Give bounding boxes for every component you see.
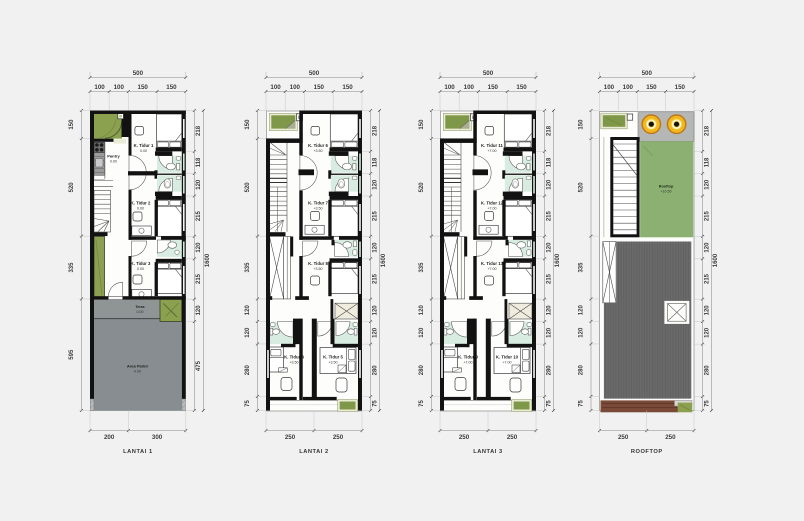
svg-text:100: 100 xyxy=(94,84,105,91)
svg-text:+7.00: +7.00 xyxy=(487,267,496,271)
svg-text:120: 120 xyxy=(546,305,552,316)
svg-text:0.00: 0.00 xyxy=(137,267,144,271)
svg-text:120: 120 xyxy=(419,305,425,316)
svg-text:250: 250 xyxy=(459,434,470,441)
svg-text:150: 150 xyxy=(419,119,425,130)
svg-text:215: 215 xyxy=(704,273,710,284)
svg-text:120: 120 xyxy=(245,305,251,316)
svg-text:500: 500 xyxy=(133,70,144,77)
svg-text:200: 200 xyxy=(104,434,115,441)
svg-text:0.00: 0.00 xyxy=(137,310,144,314)
svg-text:150: 150 xyxy=(314,84,325,91)
svg-text:520: 520 xyxy=(579,182,585,193)
svg-text:118: 118 xyxy=(704,157,710,167)
svg-text:LANTAI 3: LANTAI 3 xyxy=(473,449,503,455)
svg-text:120: 120 xyxy=(372,327,378,338)
svg-text:500: 500 xyxy=(483,70,494,77)
svg-text:Teras: Teras xyxy=(135,305,144,309)
svg-text:1600: 1600 xyxy=(381,253,387,267)
svg-text:280: 280 xyxy=(419,365,425,376)
svg-text:218: 218 xyxy=(546,125,552,136)
svg-text:250: 250 xyxy=(507,434,518,441)
svg-text:215: 215 xyxy=(372,210,378,221)
svg-text:335: 335 xyxy=(245,262,251,273)
svg-text:335: 335 xyxy=(579,262,585,273)
svg-text:120: 120 xyxy=(546,327,552,338)
svg-text:280: 280 xyxy=(704,365,710,376)
svg-text:218: 218 xyxy=(372,125,378,136)
svg-text:215: 215 xyxy=(372,273,378,284)
svg-text:0.00: 0.00 xyxy=(110,160,117,164)
svg-text:0.00: 0.00 xyxy=(137,207,144,211)
svg-text:500: 500 xyxy=(309,70,320,77)
svg-text:+10.50: +10.50 xyxy=(660,190,671,194)
svg-text:150: 150 xyxy=(245,119,251,130)
svg-text:100: 100 xyxy=(114,84,125,91)
svg-text:118: 118 xyxy=(196,157,202,167)
svg-text:+3.50: +3.50 xyxy=(313,267,322,271)
svg-text:280: 280 xyxy=(245,365,251,376)
svg-text:+7.00: +7.00 xyxy=(487,207,496,211)
svg-text:100: 100 xyxy=(270,84,281,91)
svg-text:75: 75 xyxy=(579,399,585,406)
svg-text:K. Tidur 10: K. Tidur 10 xyxy=(496,355,519,360)
svg-text:75: 75 xyxy=(546,400,552,407)
svg-text:K. Tidur 1: K. Tidur 1 xyxy=(134,143,154,148)
svg-text:475: 475 xyxy=(196,360,202,371)
svg-text:215: 215 xyxy=(196,273,202,284)
svg-text:K. Tidur 12: K. Tidur 12 xyxy=(481,201,504,206)
svg-text:K. Tidur 2: K. Tidur 2 xyxy=(131,201,151,206)
svg-text:K. Tidur 13: K. Tidur 13 xyxy=(481,261,504,266)
svg-text:595: 595 xyxy=(69,349,75,360)
svg-text:300: 300 xyxy=(152,434,163,441)
svg-text:520: 520 xyxy=(245,182,251,193)
svg-text:118: 118 xyxy=(372,157,378,167)
svg-text:120: 120 xyxy=(704,242,710,253)
svg-text:K. Tidur 7: K. Tidur 7 xyxy=(308,201,328,206)
svg-text:100: 100 xyxy=(444,84,455,91)
svg-text:150: 150 xyxy=(516,84,527,91)
svg-text:120: 120 xyxy=(196,242,202,253)
svg-text:+3.50: +3.50 xyxy=(289,361,298,365)
svg-text:LANTAI 2: LANTAI 2 xyxy=(299,449,329,455)
svg-text:250: 250 xyxy=(665,434,676,441)
svg-text:100: 100 xyxy=(290,84,301,91)
svg-text:K. Tidur 5: K. Tidur 5 xyxy=(323,355,343,360)
svg-text:150: 150 xyxy=(488,84,499,91)
svg-text:250: 250 xyxy=(618,434,629,441)
svg-text:120: 120 xyxy=(704,305,710,316)
svg-text:280: 280 xyxy=(546,365,552,376)
svg-text:150: 150 xyxy=(138,84,149,91)
svg-text:120: 120 xyxy=(579,305,585,316)
svg-text:K. Tidur 4: K. Tidur 4 xyxy=(284,355,304,360)
svg-text:218: 218 xyxy=(704,125,710,136)
svg-text:150: 150 xyxy=(342,84,353,91)
svg-text:150: 150 xyxy=(579,119,585,130)
svg-text:+7.00: +7.00 xyxy=(487,149,496,153)
svg-text:75: 75 xyxy=(372,400,378,407)
svg-text:335: 335 xyxy=(69,262,75,273)
svg-text:K. Tidur 3: K. Tidur 3 xyxy=(131,261,151,266)
svg-text:100: 100 xyxy=(623,84,634,91)
svg-text:335: 335 xyxy=(419,262,425,273)
svg-text:Rooftop: Rooftop xyxy=(659,185,674,189)
svg-text:+7.00: +7.00 xyxy=(463,361,472,365)
svg-text:280: 280 xyxy=(579,365,585,376)
svg-text:+3.50: +3.50 xyxy=(313,149,322,153)
svg-text:ROOFTOP: ROOFTOP xyxy=(631,449,663,455)
svg-text:75: 75 xyxy=(245,399,251,406)
svg-text:1600: 1600 xyxy=(555,253,561,267)
svg-text:150: 150 xyxy=(646,84,657,91)
svg-text:LANTAI 1: LANTAI 1 xyxy=(123,449,153,455)
svg-text:120: 120 xyxy=(196,305,202,316)
svg-text:120: 120 xyxy=(546,179,552,190)
svg-text:120: 120 xyxy=(704,327,710,338)
svg-text:215: 215 xyxy=(704,210,710,221)
svg-text:150: 150 xyxy=(675,84,686,91)
svg-text:Area Parkir: Area Parkir xyxy=(127,364,149,369)
svg-text:280: 280 xyxy=(372,365,378,376)
svg-text:K. Tidur 8: K. Tidur 8 xyxy=(308,261,328,266)
svg-text:0.00: 0.00 xyxy=(134,370,141,374)
svg-text:75: 75 xyxy=(704,400,710,407)
svg-text:215: 215 xyxy=(546,273,552,284)
svg-text:120: 120 xyxy=(546,242,552,253)
svg-text:75: 75 xyxy=(419,399,425,406)
svg-text:120: 120 xyxy=(704,179,710,190)
svg-text:120: 120 xyxy=(196,179,202,190)
svg-text:520: 520 xyxy=(69,182,75,193)
svg-text:+3.50: +3.50 xyxy=(328,361,337,365)
svg-text:250: 250 xyxy=(333,434,344,441)
svg-text:215: 215 xyxy=(196,210,202,221)
svg-text:150: 150 xyxy=(69,119,75,130)
svg-text:100: 100 xyxy=(604,84,615,91)
svg-text:520: 520 xyxy=(419,182,425,193)
svg-text:1600: 1600 xyxy=(205,253,211,267)
svg-text:120: 120 xyxy=(419,327,425,338)
svg-text:218: 218 xyxy=(196,125,202,136)
svg-text:215: 215 xyxy=(546,210,552,221)
svg-text:K. Tidur 9: K. Tidur 9 xyxy=(458,355,478,360)
svg-text:1600: 1600 xyxy=(713,253,719,267)
svg-text:120: 120 xyxy=(372,179,378,190)
svg-text:500: 500 xyxy=(642,70,653,77)
svg-text:118: 118 xyxy=(546,157,552,167)
svg-text:120: 120 xyxy=(245,327,251,338)
svg-text:150: 150 xyxy=(166,84,177,91)
svg-text:K. Tidur 11: K. Tidur 11 xyxy=(481,143,503,148)
svg-text:K. Tidur 6: K. Tidur 6 xyxy=(308,143,328,148)
svg-text:120: 120 xyxy=(372,305,378,316)
svg-text:120: 120 xyxy=(372,242,378,253)
svg-text:120: 120 xyxy=(579,327,585,338)
svg-text:250: 250 xyxy=(285,434,296,441)
svg-text:0.00: 0.00 xyxy=(140,149,147,153)
svg-text:+7.00: +7.00 xyxy=(502,361,511,365)
svg-text:Pantry: Pantry xyxy=(107,154,120,159)
svg-text:+3.50: +3.50 xyxy=(313,207,322,211)
svg-text:100: 100 xyxy=(464,84,475,91)
